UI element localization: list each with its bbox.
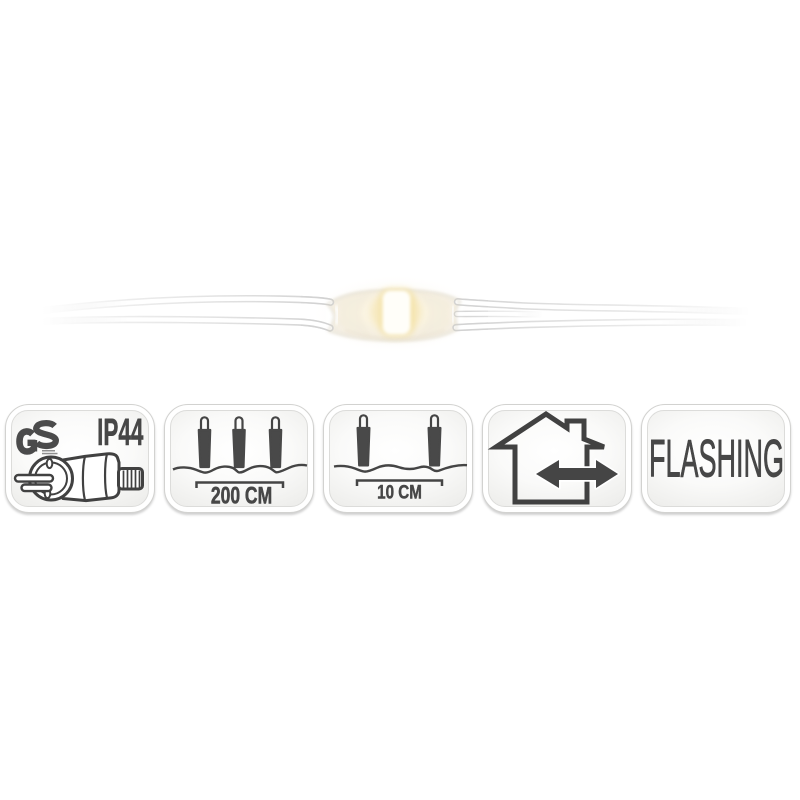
svg-text:FLASHING: FLASHING — [649, 429, 784, 488]
svg-text:200 CM: 200 CM — [211, 483, 272, 509]
svg-text:10 CM: 10 CM — [377, 481, 422, 503]
svg-text:IP44: IP44 — [97, 411, 144, 454]
